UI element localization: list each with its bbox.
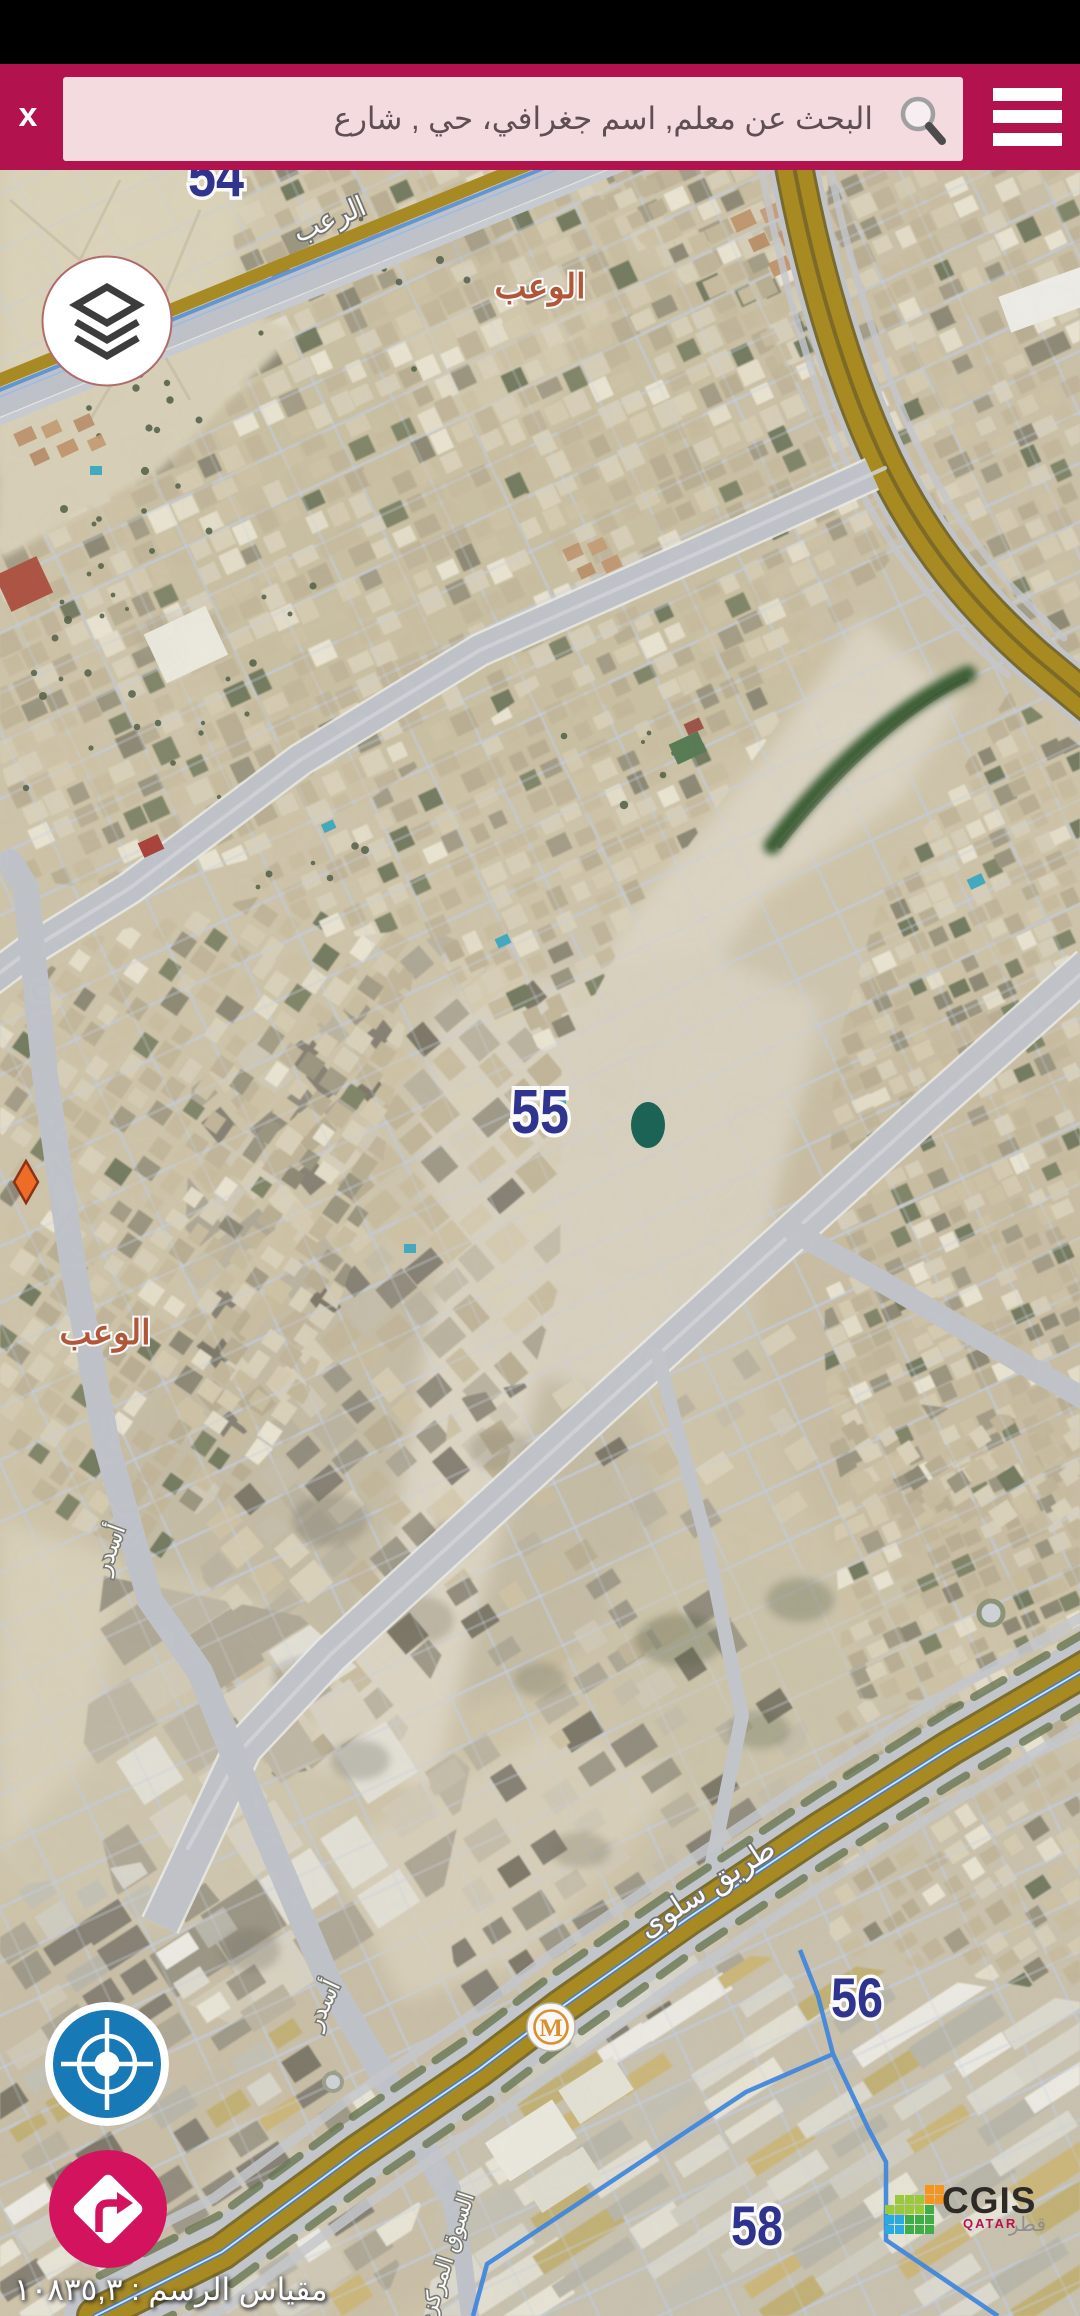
svg-text:قطر: قطر: [1008, 2214, 1046, 2236]
